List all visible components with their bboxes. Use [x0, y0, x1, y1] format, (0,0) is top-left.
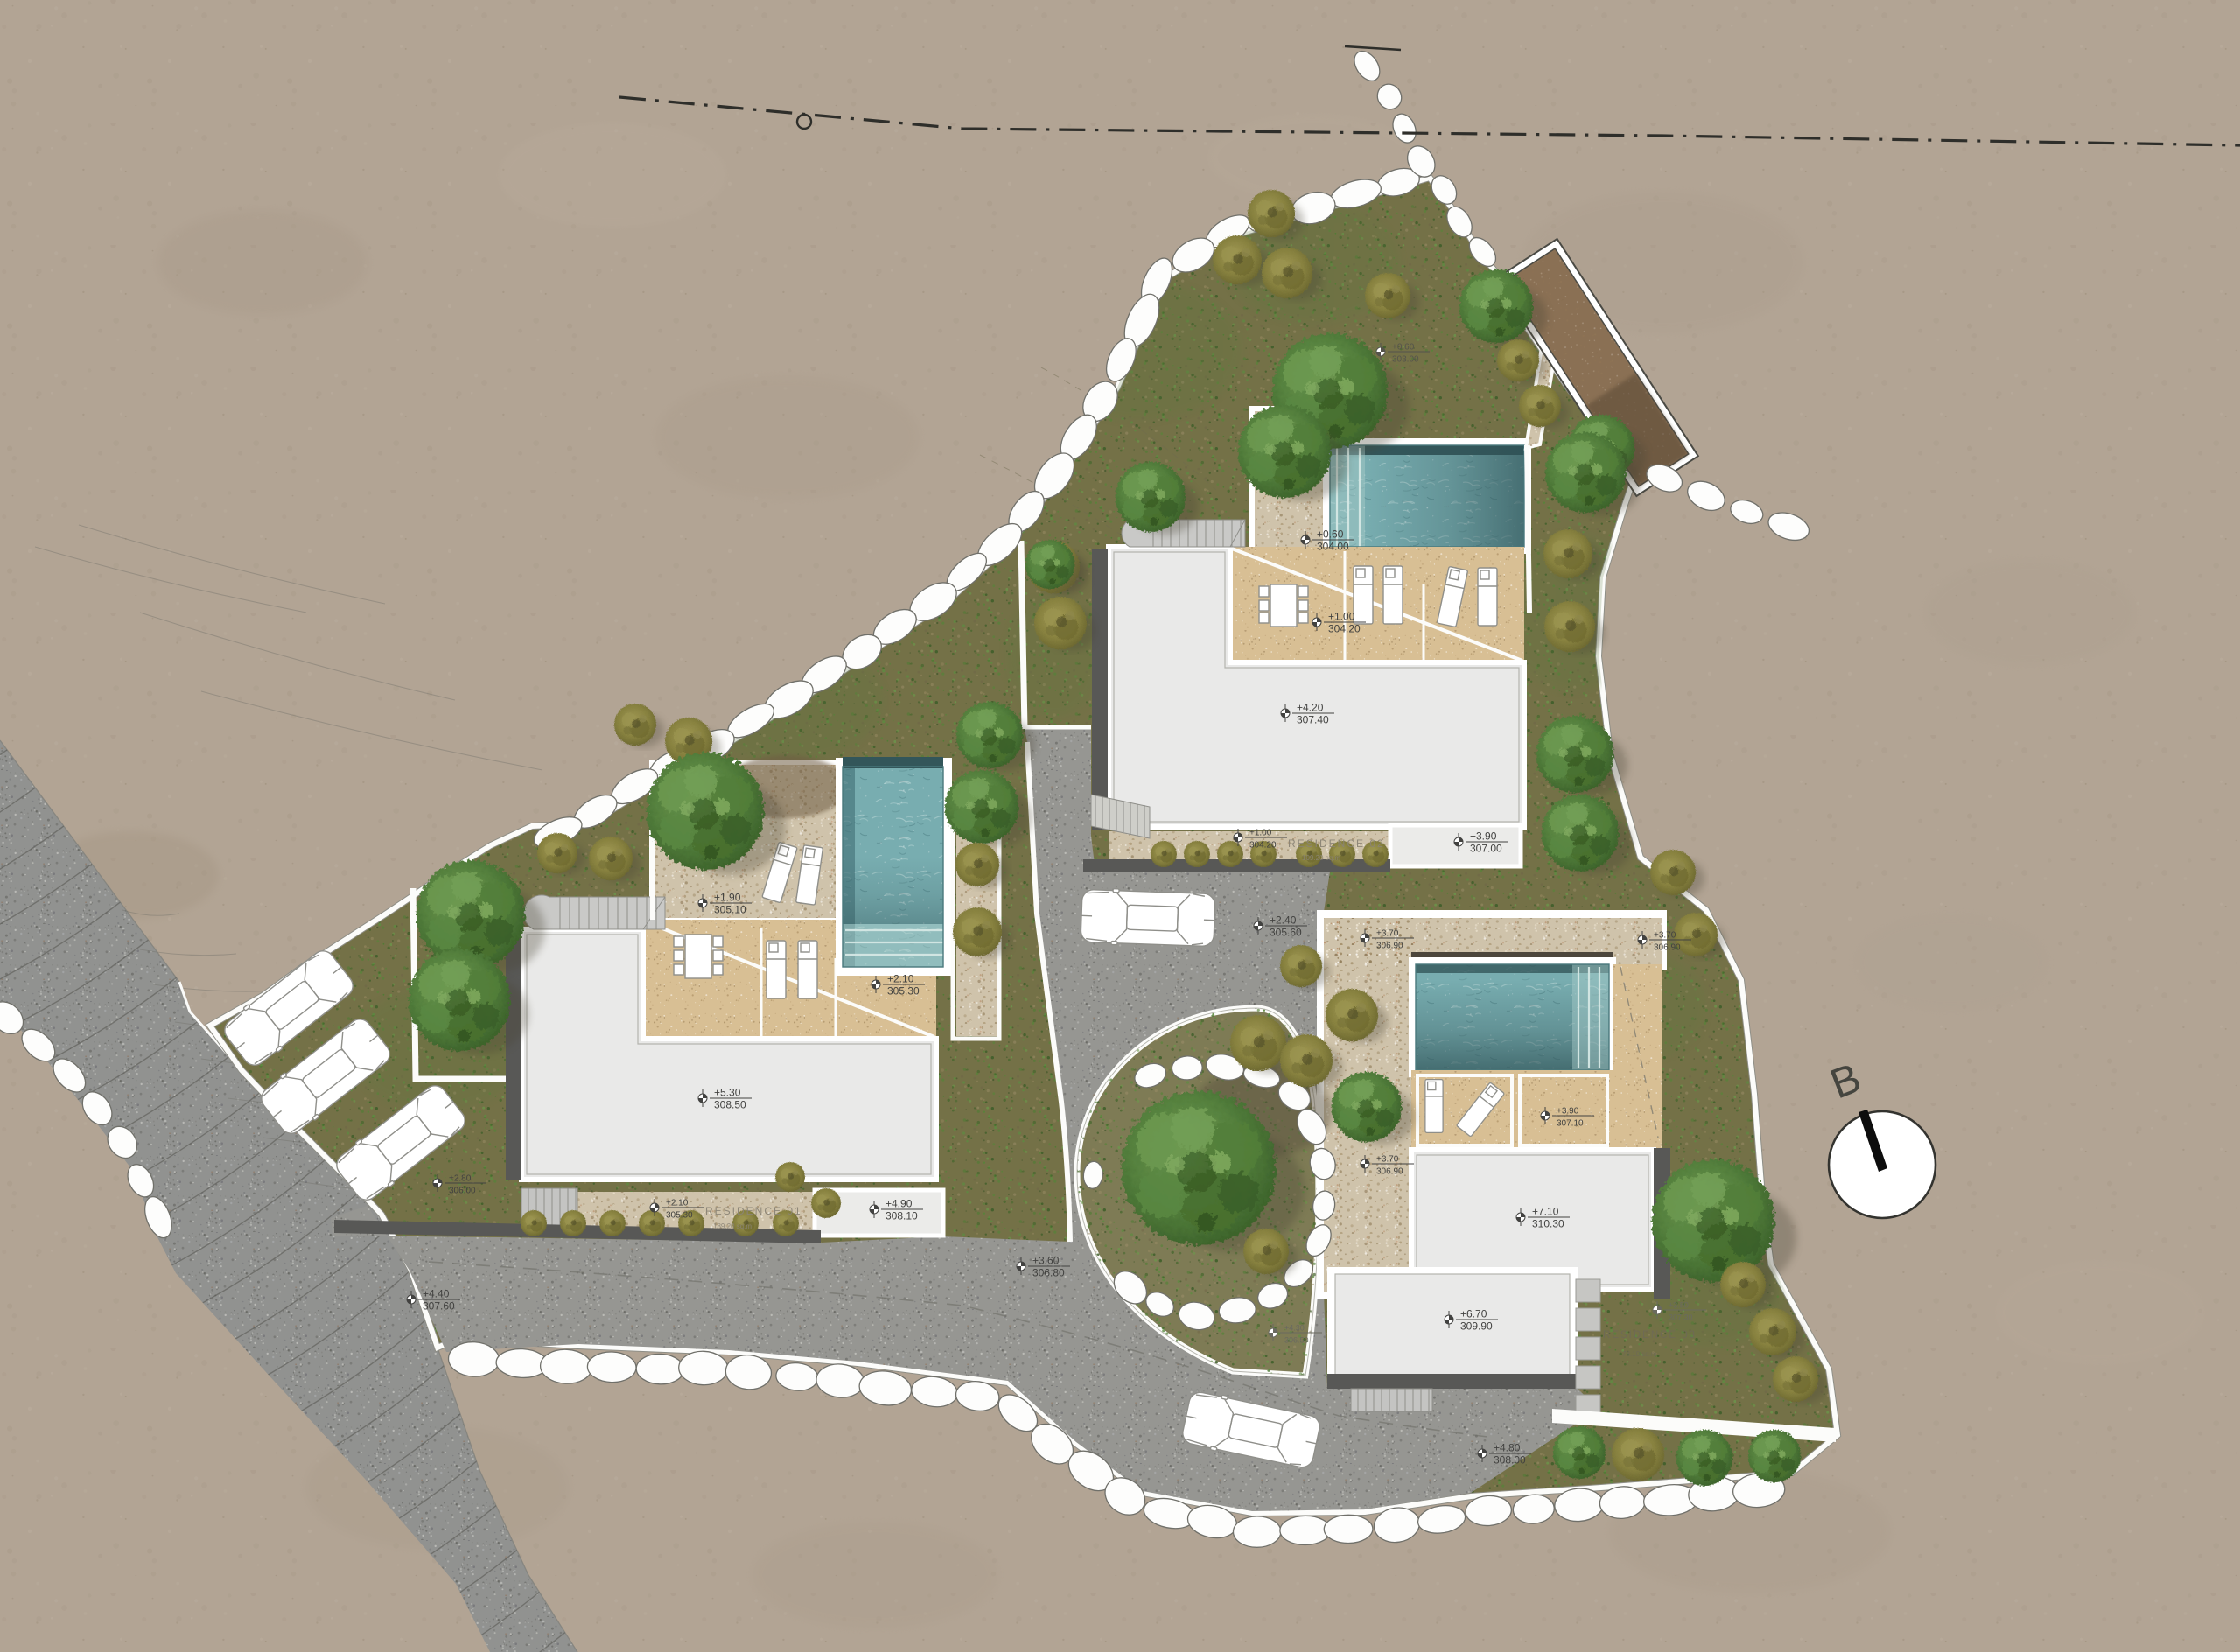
- svg-text:306.00: 306.00: [449, 1186, 476, 1196]
- svg-text:+3.90: +3.90: [1557, 1107, 1579, 1116]
- svg-text:+0.60: +0.60: [1317, 528, 1344, 541]
- svg-text:+4.30: +4.30: [1284, 1324, 1305, 1333]
- svg-text:+3.60: +3.60: [1032, 1255, 1060, 1267]
- svg-text:+0.60: +0.60: [1392, 343, 1415, 353]
- svg-text:+2.40: +2.40: [1270, 914, 1297, 927]
- svg-text:307.10: 307.10: [1557, 1119, 1584, 1129]
- svg-text:189.20 sq.m: 189.20 sq.m: [713, 1222, 752, 1230]
- svg-text:+2.80: +2.80: [449, 1174, 472, 1184]
- svg-text:303.00: 303.00: [1392, 355, 1419, 365]
- svg-text:305.30: 305.30: [666, 1211, 693, 1221]
- svg-text:78.10 sq.m: 78.10 sq.m: [1622, 1350, 1657, 1358]
- svg-text:307.40: 307.40: [1297, 714, 1329, 726]
- svg-text:+5.30: +5.30: [714, 1087, 741, 1099]
- svg-text:+3.70: +3.70: [1654, 931, 1676, 941]
- svg-text:+1.00: +1.00: [1249, 829, 1272, 838]
- svg-text:+4.90: +4.90: [885, 1198, 913, 1210]
- svg-text:308.00: 308.00: [1494, 1454, 1526, 1466]
- svg-text:306.90: 306.90: [1376, 941, 1403, 951]
- svg-text:306.90: 306.90: [1376, 1167, 1403, 1177]
- svg-text:306.90: 306.90: [1654, 943, 1681, 953]
- svg-text:305.10: 305.10: [714, 904, 746, 916]
- svg-text:+2.10: +2.10: [887, 973, 914, 985]
- svg-text:+4.80: +4.80: [1494, 1442, 1521, 1454]
- svg-text:RESIDENCE 01: RESIDENCE 01: [705, 1205, 802, 1217]
- svg-text:+3.70: +3.70: [1376, 929, 1399, 939]
- svg-text:+3.90: +3.90: [1470, 830, 1497, 843]
- svg-text:304.20: 304.20: [1328, 623, 1361, 635]
- svg-text:+4.20: +4.20: [1297, 702, 1324, 714]
- svg-text:RESIDENCE 03: RESIDENCE 03: [1603, 1330, 1697, 1340]
- svg-text:307.30: 307.30: [1669, 1313, 1693, 1322]
- svg-text:+3.80: +3.80: [1669, 1301, 1689, 1310]
- svg-text:+1.00: +1.00: [1328, 611, 1355, 623]
- svg-text:308.10: 308.10: [885, 1210, 918, 1222]
- svg-text:RESIDENCE 02: RESIDENCE 02: [1288, 837, 1385, 850]
- svg-text:305.60: 305.60: [1270, 927, 1302, 939]
- svg-text:308.50: 308.50: [714, 1099, 746, 1111]
- svg-text:+6.70: +6.70: [1460, 1308, 1487, 1320]
- svg-text:306.80: 306.80: [1032, 1267, 1065, 1279]
- svg-text:+4.40: +4.40: [423, 1288, 450, 1300]
- svg-text:307.60: 307.60: [423, 1300, 455, 1312]
- svg-text:307.00: 307.00: [1470, 843, 1502, 855]
- svg-text:306.50: 306.50: [1284, 1336, 1309, 1345]
- svg-text:+2.10: +2.10: [666, 1199, 689, 1208]
- svg-text:+1.90: +1.90: [714, 892, 741, 904]
- svg-text:+3.70: +3.70: [1376, 1155, 1399, 1165]
- svg-text:304.20: 304.20: [1249, 841, 1277, 850]
- svg-text:310.30: 310.30: [1532, 1218, 1564, 1230]
- svg-text:305.30: 305.30: [887, 985, 920, 997]
- svg-text:304.00: 304.00: [1317, 541, 1349, 553]
- svg-text:109.20 sq.m: 109.20 sq.m: [1302, 854, 1340, 862]
- svg-text:+7.10: +7.10: [1532, 1206, 1559, 1218]
- svg-text:309.90: 309.90: [1460, 1320, 1493, 1333]
